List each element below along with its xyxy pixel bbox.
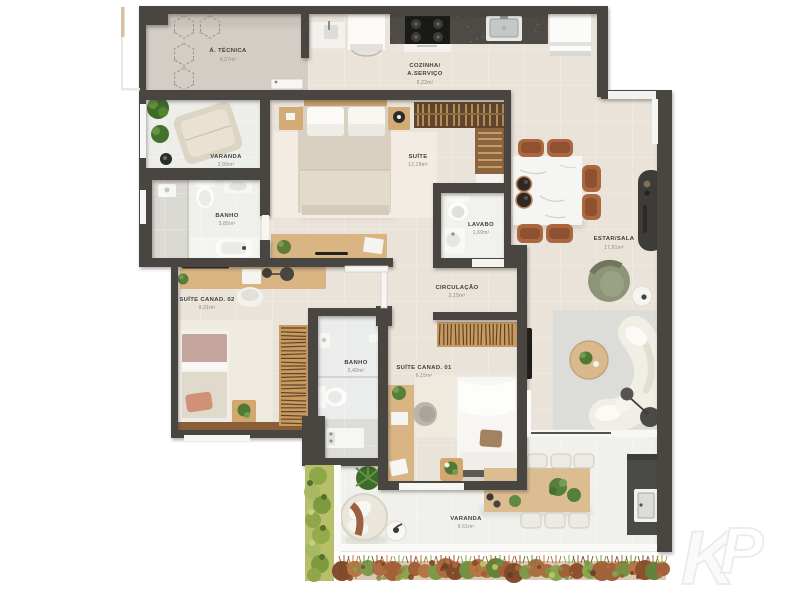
svg-text:SUÍTE CANAD. 02: SUÍTE CANAD. 02 bbox=[179, 295, 235, 303]
svg-text:17,91m²: 17,91m² bbox=[604, 245, 624, 251]
svg-text:LAVABO: LAVABO bbox=[468, 222, 494, 228]
svg-text:CIRCULAÇÃO: CIRCULAÇÃO bbox=[435, 284, 478, 291]
svg-text:4,27m²: 4,27m² bbox=[220, 57, 237, 63]
svg-text:BANHO: BANHO bbox=[215, 213, 238, 219]
svg-text:2,15m²: 2,15m² bbox=[449, 293, 466, 299]
svg-text:9,61m²: 9,61m² bbox=[458, 524, 475, 530]
svg-text:ESTAR/SALA: ESTAR/SALA bbox=[594, 236, 635, 242]
svg-text:1,69m²: 1,69m² bbox=[473, 230, 490, 236]
svg-text:P: P bbox=[720, 514, 764, 587]
svg-text:12,19m²: 12,19m² bbox=[408, 162, 428, 168]
svg-text:Á. TÉCNICA: Á. TÉCNICA bbox=[209, 46, 247, 54]
svg-text:3,40m²: 3,40m² bbox=[348, 368, 365, 374]
svg-text:2,99m²: 2,99m² bbox=[218, 162, 235, 168]
svg-text:9,31m²: 9,31m² bbox=[199, 305, 216, 311]
svg-text:COZINHA/: COZINHA/ bbox=[409, 63, 440, 69]
svg-text:3,85m²: 3,85m² bbox=[219, 221, 236, 227]
svg-text:SUÍTE: SUÍTE bbox=[408, 152, 427, 160]
svg-text:BANHO: BANHO bbox=[344, 360, 367, 366]
svg-text:SUÍTE CANAD. 01: SUÍTE CANAD. 01 bbox=[396, 363, 452, 371]
svg-text:VARANDA: VARANDA bbox=[210, 154, 242, 160]
svg-text:8,22m²: 8,22m² bbox=[417, 80, 434, 86]
svg-text:6,15m²: 6,15m² bbox=[416, 373, 433, 379]
svg-text:A.SERVIÇO: A.SERVIÇO bbox=[407, 71, 443, 77]
svg-text:VARANDA: VARANDA bbox=[450, 516, 482, 522]
